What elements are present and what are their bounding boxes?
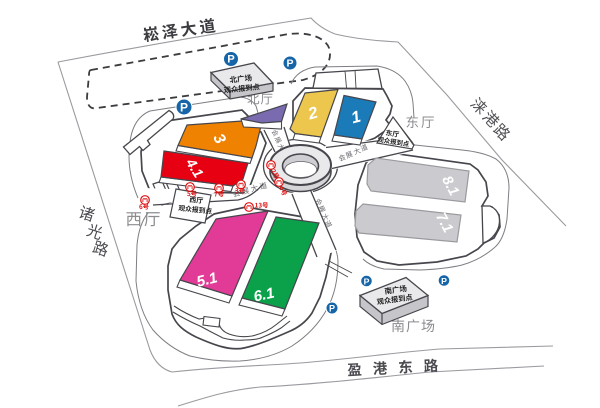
svg-text:P: P <box>286 58 293 70</box>
svg-text:P: P <box>364 277 370 287</box>
svg-text:P: P <box>227 54 235 66</box>
svg-text:P: P <box>441 276 447 286</box>
svg-text:P: P <box>180 101 188 115</box>
svg-text:P: P <box>329 304 335 314</box>
